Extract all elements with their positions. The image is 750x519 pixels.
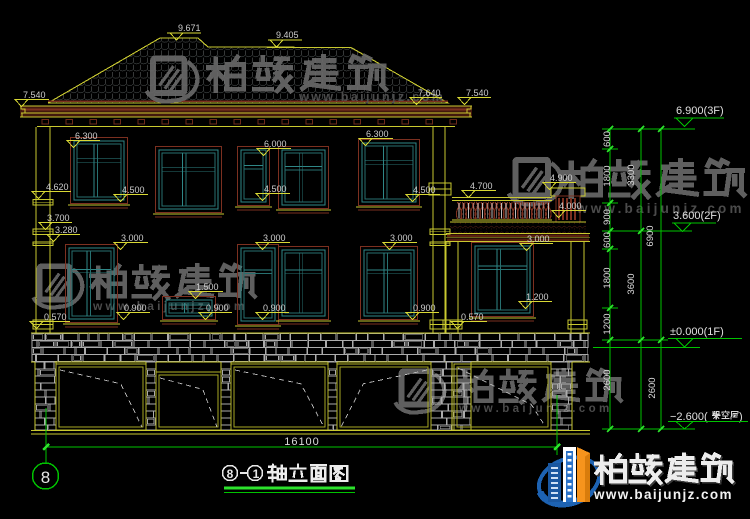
svg-text:7.540: 7.540 — [23, 90, 46, 100]
svg-text:1200: 1200 — [602, 313, 613, 334]
svg-text:3.000: 3.000 — [263, 233, 286, 243]
svg-text:0.570: 0.570 — [461, 312, 484, 322]
svg-text:3.000: 3.000 — [121, 233, 144, 243]
svg-text:4.700: 4.700 — [470, 181, 493, 191]
svg-text:2600: 2600 — [602, 369, 613, 390]
svg-text:4.620: 4.620 — [46, 182, 69, 192]
svg-text:0.900: 0.900 — [124, 303, 147, 313]
svg-text:3.280: 3.280 — [55, 225, 78, 235]
svg-text:www.baijunjz.com: www.baijunjz.com — [593, 487, 733, 502]
svg-text:www.baijunjz.com: www.baijunjz.com — [458, 403, 613, 415]
svg-text:8: 8 — [41, 468, 50, 487]
svg-text:6900: 6900 — [645, 225, 656, 246]
svg-text:8: 8 — [227, 467, 234, 481]
svg-text:1: 1 — [253, 467, 260, 481]
svg-text:2600: 2600 — [647, 377, 658, 398]
svg-text:4.500: 4.500 — [413, 185, 436, 195]
svg-text:7.540: 7.540 — [466, 88, 489, 98]
svg-text:3300: 3300 — [626, 164, 637, 185]
svg-text:3.700: 3.700 — [47, 213, 70, 223]
svg-text:±0.000(1F): ±0.000(1F) — [670, 326, 724, 338]
svg-text:3.600(2F): 3.600(2F) — [673, 210, 721, 222]
svg-text:4.500: 4.500 — [264, 184, 287, 194]
svg-text:1.200: 1.200 — [526, 292, 549, 302]
svg-text:0.900: 0.900 — [413, 303, 436, 313]
svg-text:0.900: 0.900 — [206, 303, 229, 313]
svg-text:900: 900 — [602, 209, 613, 225]
svg-text:0.570: 0.570 — [44, 312, 67, 322]
svg-text:0.900: 0.900 — [263, 303, 286, 313]
svg-text:1800: 1800 — [602, 165, 613, 186]
svg-text:6.000: 6.000 — [264, 139, 287, 149]
svg-text:4.000: 4.000 — [559, 201, 582, 211]
svg-text:7.640: 7.640 — [418, 88, 441, 98]
svg-text:9.405: 9.405 — [276, 30, 299, 40]
svg-text:6.300: 6.300 — [75, 131, 98, 141]
svg-text:6.300: 6.300 — [366, 129, 389, 139]
svg-text:600: 600 — [602, 131, 613, 147]
svg-text:3.000: 3.000 — [527, 234, 550, 244]
svg-text:1800: 1800 — [602, 267, 613, 288]
svg-text:3.000: 3.000 — [390, 233, 413, 243]
svg-text:4.900: 4.900 — [550, 173, 573, 183]
svg-text:6.900(3F): 6.900(3F) — [676, 105, 724, 117]
svg-text:4.500: 4.500 — [122, 185, 145, 195]
svg-text:9.671: 9.671 — [178, 23, 201, 33]
svg-text:16100: 16100 — [284, 436, 320, 448]
svg-text:3600: 3600 — [626, 273, 637, 294]
svg-text:600: 600 — [602, 232, 613, 248]
svg-text:1.500: 1.500 — [196, 282, 219, 292]
